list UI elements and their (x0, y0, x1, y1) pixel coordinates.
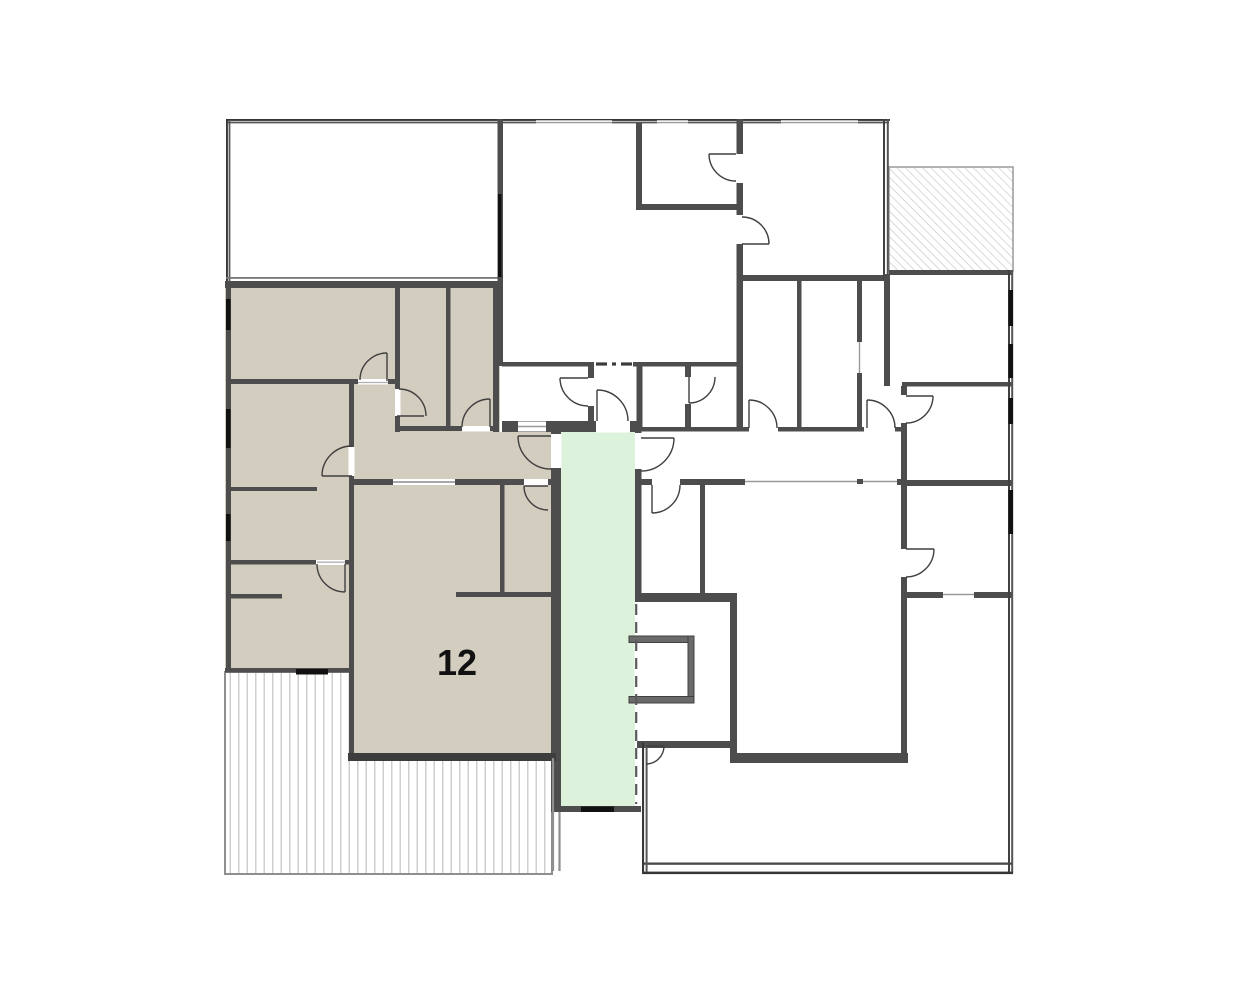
svg-text:12: 12 (437, 642, 477, 683)
